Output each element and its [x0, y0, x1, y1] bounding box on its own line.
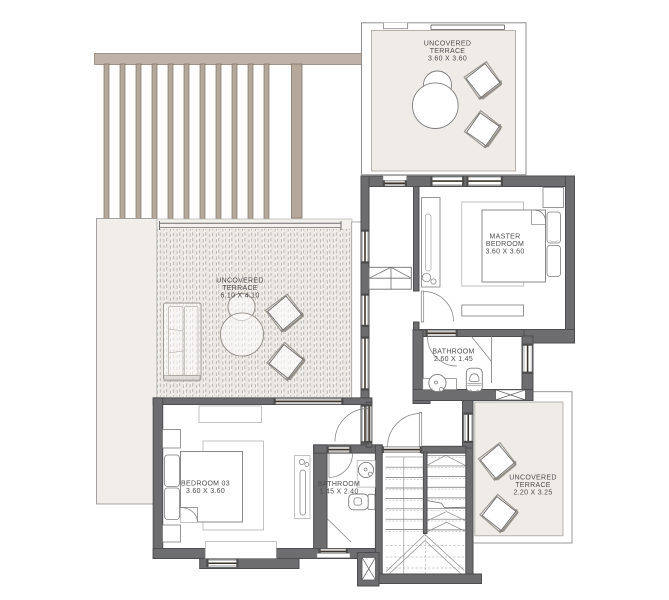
svg-text:2.60 X 1.45: 2.60 X 1.45 — [434, 356, 473, 363]
svg-text:2.20 X 3.25: 2.20 X 3.25 — [513, 489, 552, 496]
svg-text:UNCOVERED: UNCOVERED — [509, 475, 556, 482]
svg-text:MASTER: MASTER — [490, 234, 521, 241]
svg-text:TERRACE: TERRACE — [430, 48, 466, 55]
svg-text:UNCOVERED: UNCOVERED — [424, 41, 471, 48]
svg-text:3.60 X 3.60: 3.60 X 3.60 — [428, 55, 467, 62]
svg-text:UNCOVERED: UNCOVERED — [216, 278, 263, 285]
svg-text:TERRACE: TERRACE — [515, 482, 551, 489]
svg-text:3.60 X 3.60: 3.60 X 3.60 — [186, 488, 225, 495]
svg-text:BATHROOM: BATHROOM — [432, 349, 474, 356]
svg-text:BEDROOM 03: BEDROOM 03 — [181, 481, 230, 488]
svg-text:3.60 X 3.60: 3.60 X 3.60 — [485, 248, 524, 255]
svg-text:BEDROOM: BEDROOM — [486, 241, 524, 248]
svg-text:6.10 X 4.10: 6.10 X 4.10 — [220, 292, 259, 299]
svg-text:1.45 X 2.40: 1.45 X 2.40 — [319, 488, 358, 495]
svg-text:TERRACE: TERRACE — [222, 285, 258, 292]
svg-text:BATHROOM: BATHROOM — [318, 481, 360, 488]
